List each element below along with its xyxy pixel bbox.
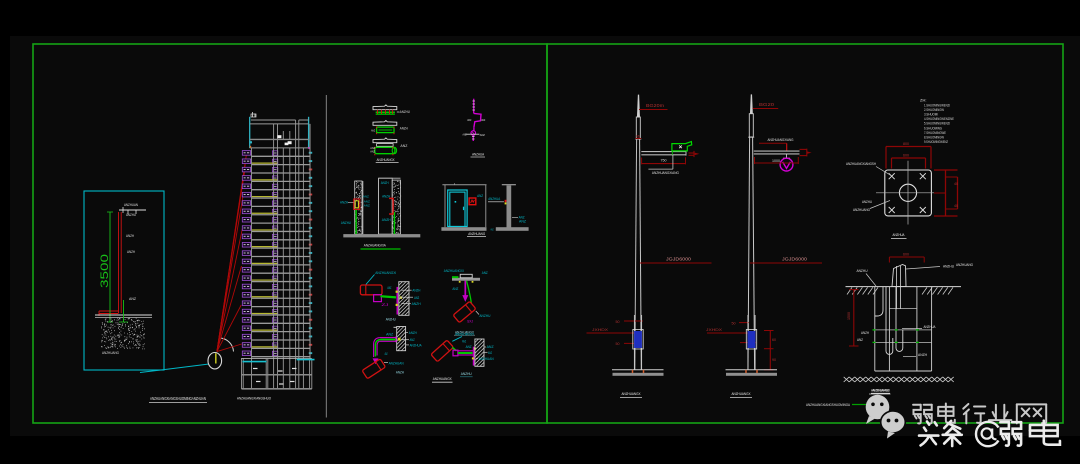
svg-text:50: 50 xyxy=(616,320,620,324)
svg-text:ANZHUA: ANZHUA xyxy=(893,233,905,237)
svg-text:ANZHUANGXIANGSHUOMINGA: ANZHUANGXIANGSHUOMINGA xyxy=(806,403,850,407)
svg-text:ANZ: ANZ xyxy=(466,345,472,349)
svg-text:ANZ: ANZ xyxy=(480,133,485,137)
svg-text:800: 800 xyxy=(903,142,909,146)
svg-text:ANZH: ANZH xyxy=(412,289,421,293)
svg-text:ANZHUANGXIANG: ANZHUANGXIANG xyxy=(768,137,794,142)
svg-text:ANZH: ANZH xyxy=(396,371,404,375)
svg-text:600: 600 xyxy=(903,253,909,257)
svg-text:ANZHU: ANZHU xyxy=(943,265,954,269)
svg-text:ANZ: ANZ xyxy=(371,129,375,133)
svg-text:ANZHUANGX: ANZHUANGX xyxy=(377,158,395,162)
svg-text:ANZHUANGX: ANZHUANGX xyxy=(433,377,452,381)
svg-text:ANZ: ANZ xyxy=(410,338,415,342)
svg-text:ANZ: ANZ xyxy=(370,149,375,153)
svg-text:JXHDX: JXHDX xyxy=(592,327,608,332)
svg-text:ANZHUA: ANZHUA xyxy=(488,197,501,201)
svg-text:JXHDX: JXHDX xyxy=(706,327,722,332)
svg-text:JGJD6000: JGJD6000 xyxy=(666,257,692,262)
svg-text:ANZH: ANZH xyxy=(382,195,391,199)
svg-text:ANZH: ANZH xyxy=(412,302,422,306)
svg-text:ANZHUA: ANZHUA xyxy=(924,325,937,329)
svg-text:ANZHUANG: ANZHUANG xyxy=(102,351,119,355)
svg-text:3500: 3500 xyxy=(99,254,111,288)
svg-text:ANZHUANG: ANZHUANG xyxy=(468,232,485,236)
svg-text:ANZ: ANZ xyxy=(387,286,391,290)
svg-text:ANZ: ANZ xyxy=(487,345,494,349)
svg-text:ANZ: ANZ xyxy=(857,338,863,342)
svg-text:ANZ: ANZ xyxy=(364,204,370,208)
svg-text:ANZHUANGXIANGSHUO: ANZHUANGXIANGSHUO xyxy=(237,396,271,401)
svg-text:ANZHU: ANZHU xyxy=(341,221,352,225)
svg-text:ANZH: ANZH xyxy=(409,331,418,335)
svg-text:3.SHUOMI: 3.SHUOMI xyxy=(924,113,938,117)
svg-text:600: 600 xyxy=(903,154,909,158)
svg-text:2.SHUOMINGW: 2.SHUOMINGW xyxy=(924,108,945,112)
svg-text:8.SHUOMINGW: 8.SHUOMINGW xyxy=(924,135,945,139)
svg-text:90: 90 xyxy=(772,358,776,362)
svg-text:40: 40 xyxy=(954,204,958,208)
svg-text:ANZHU: ANZHU xyxy=(461,372,472,376)
svg-text:4.SHUOMINGWENZINE: 4.SHUOMINGWENZINE xyxy=(924,117,955,121)
svg-text:ANZH: ANZH xyxy=(918,353,928,357)
svg-text:ZH:: ZH: xyxy=(920,98,926,103)
svg-text:6.SHUOMING: 6.SHUOMING xyxy=(924,126,942,130)
svg-text:ANZHUANGX: ANZHUANGX xyxy=(732,391,751,396)
svg-text:ANZHUANGXIA: ANZHUANGXIA xyxy=(364,244,386,248)
svg-text:ANZHU: ANZHU xyxy=(386,318,396,322)
svg-text:ZJ: ZJ xyxy=(381,303,389,307)
svg-text:ANZ: ANZ xyxy=(481,118,485,122)
svg-text:ANZHU: ANZHU xyxy=(862,200,872,204)
svg-text:ANZH: ANZH xyxy=(340,201,349,205)
svg-text:ANZ: ANZ xyxy=(400,144,407,148)
svg-text:ANZ: ANZ xyxy=(482,271,488,275)
svg-text:ANZHU: ANZHU xyxy=(479,314,491,318)
svg-text:50: 50 xyxy=(732,321,736,325)
svg-text:ANZ: ANZ xyxy=(452,287,458,291)
svg-text:40: 40 xyxy=(954,182,958,186)
svg-text:ANZHU: ANZHU xyxy=(126,213,137,217)
svg-text:ANZH: ANZH xyxy=(382,218,392,222)
svg-text:ANZH: ANZH xyxy=(400,126,409,130)
svg-text:750: 750 xyxy=(661,159,667,163)
svg-text:ANZ: ANZ xyxy=(519,219,526,223)
svg-text:ANZHUANG: ANZHUANG xyxy=(956,263,973,267)
svg-text:SXJ: SXJ xyxy=(467,320,473,324)
svg-text:5.SHUOMINGWENZI: 5.SHUOMINGWENZI xyxy=(924,122,950,126)
svg-text:ANZH: ANZH xyxy=(127,250,136,254)
svg-text:BG20m: BG20m xyxy=(646,103,665,108)
svg-text:ANZ: ANZ xyxy=(491,227,494,231)
svg-text:7.SHUOMINGWE: 7.SHUOMINGWE xyxy=(924,131,947,135)
svg-text:ANZ: ANZ xyxy=(463,132,467,136)
svg-text:ANZH: ANZH xyxy=(126,234,135,238)
svg-text:ANZH: ANZH xyxy=(381,181,390,185)
svg-text:ANZ: ANZ xyxy=(363,195,369,199)
svg-text:ANZ: ANZ xyxy=(386,333,393,337)
svg-text:1500: 1500 xyxy=(847,312,851,320)
svg-text:ANZHUANGXIANGSH: ANZHUANGXIANGSH xyxy=(846,162,876,166)
svg-text:1.SHUOMINGWENZI: 1.SHUOMINGWENZI xyxy=(924,104,950,108)
svg-text:ANZHUA: ANZHUA xyxy=(472,152,484,156)
svg-text:ANZHUANGXI: ANZHUANGXI xyxy=(375,271,396,275)
svg-text:ANZHUANGXIANG: ANZHUANGXIANG xyxy=(652,170,679,175)
svg-text:JGJD6000: JGJD6000 xyxy=(782,257,808,262)
svg-text:9.SHUOMINGWENZ: 9.SHUOMINGWENZ xyxy=(924,140,948,144)
svg-text:ANZHUANG: ANZHUANG xyxy=(853,208,870,212)
svg-text:ANZHUA: ANZHUA xyxy=(410,343,423,347)
svg-text:ANZHUANGX: ANZHUANGX xyxy=(455,333,475,337)
svg-text:60: 60 xyxy=(772,338,776,342)
svg-text:1000: 1000 xyxy=(772,159,780,163)
svg-text:ANZ: ANZ xyxy=(462,339,466,343)
svg-text:ANZ: ANZ xyxy=(477,194,483,198)
svg-text:ANZHU: ANZHU xyxy=(400,110,411,114)
svg-text:ANZ: ANZ xyxy=(467,118,471,122)
svg-text:h6: h6 xyxy=(636,135,640,139)
svg-text:50: 50 xyxy=(616,342,620,346)
svg-text:ANZ: ANZ xyxy=(488,351,492,355)
svg-text:ANZHUANGXIANGSHUOMINGANZHUAN: ANZHUANGXIANGSHUOMINGANZHUAN xyxy=(150,396,206,401)
svg-text:ANZ: ANZ xyxy=(414,296,419,300)
svg-text:ANZHUAN: ANZHUAN xyxy=(389,362,405,366)
svg-text:BG20: BG20 xyxy=(759,102,775,107)
svg-text:ANZH: ANZH xyxy=(861,331,870,335)
svg-text:ANZ: ANZ xyxy=(385,352,388,356)
svg-text:ANZHU: ANZHU xyxy=(857,269,868,273)
svg-text:ANZHUANGXI: ANZHUANGXI xyxy=(444,269,464,273)
svg-text:ANZHUANG: ANZHUANG xyxy=(872,389,889,393)
svg-text:ANZHUAN: ANZHUAN xyxy=(479,357,495,361)
svg-text:ANZ: ANZ xyxy=(129,297,136,301)
svg-text:ANZHUANGX: ANZHUANGX xyxy=(622,391,641,396)
svg-text:ANZHUAN: ANZHUAN xyxy=(124,203,138,207)
